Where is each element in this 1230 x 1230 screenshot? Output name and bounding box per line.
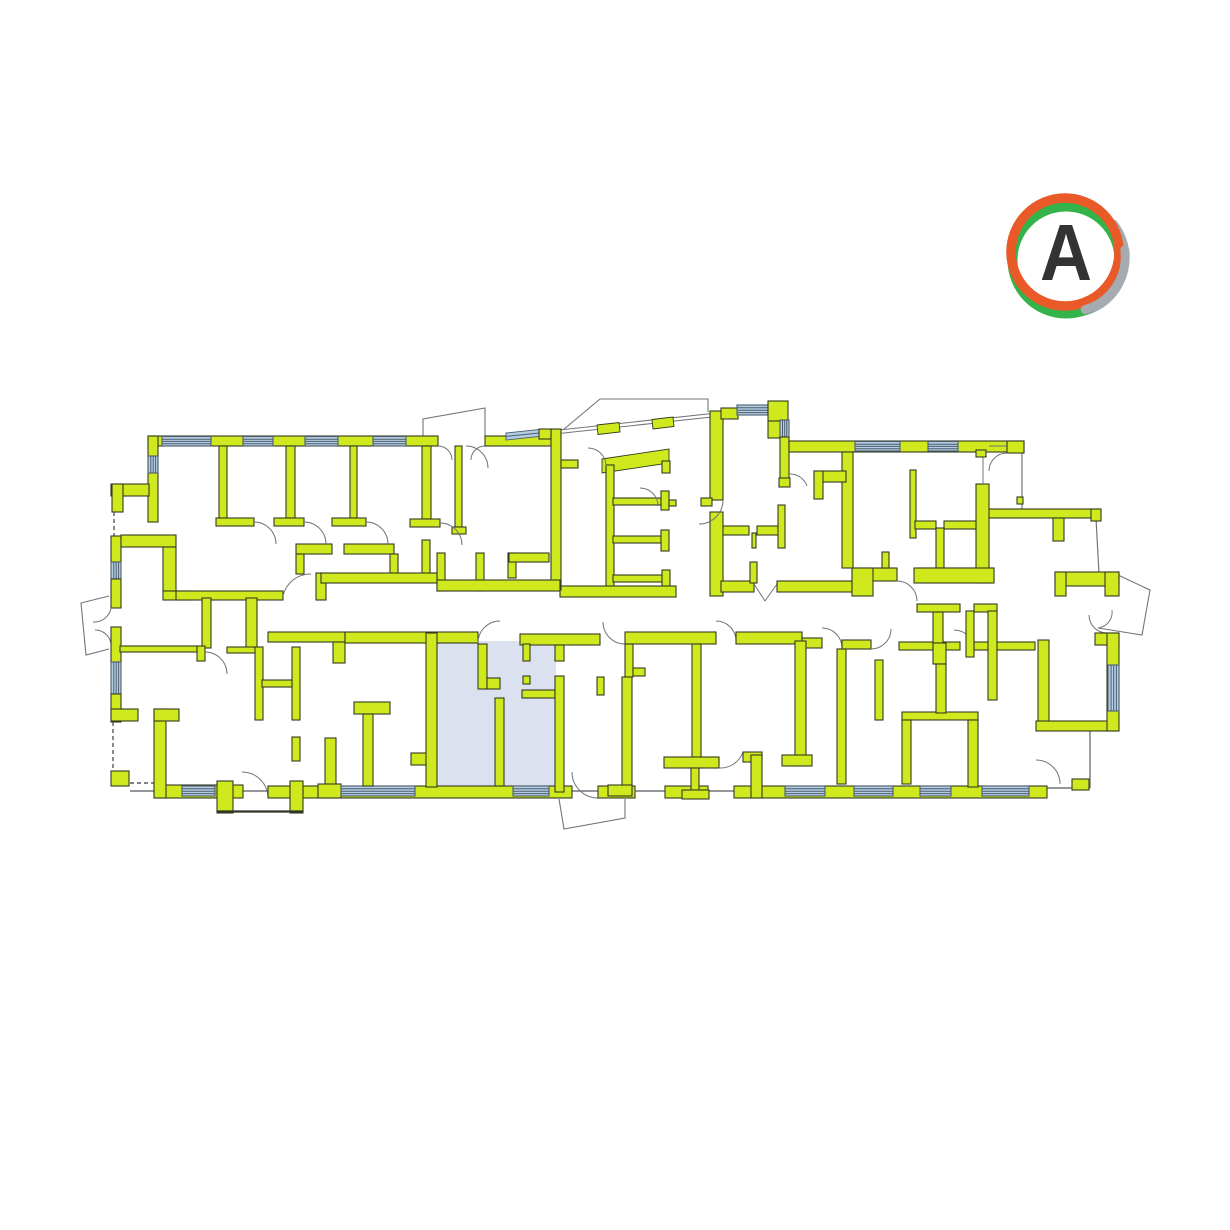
svg-text:A: A [1040, 209, 1092, 298]
